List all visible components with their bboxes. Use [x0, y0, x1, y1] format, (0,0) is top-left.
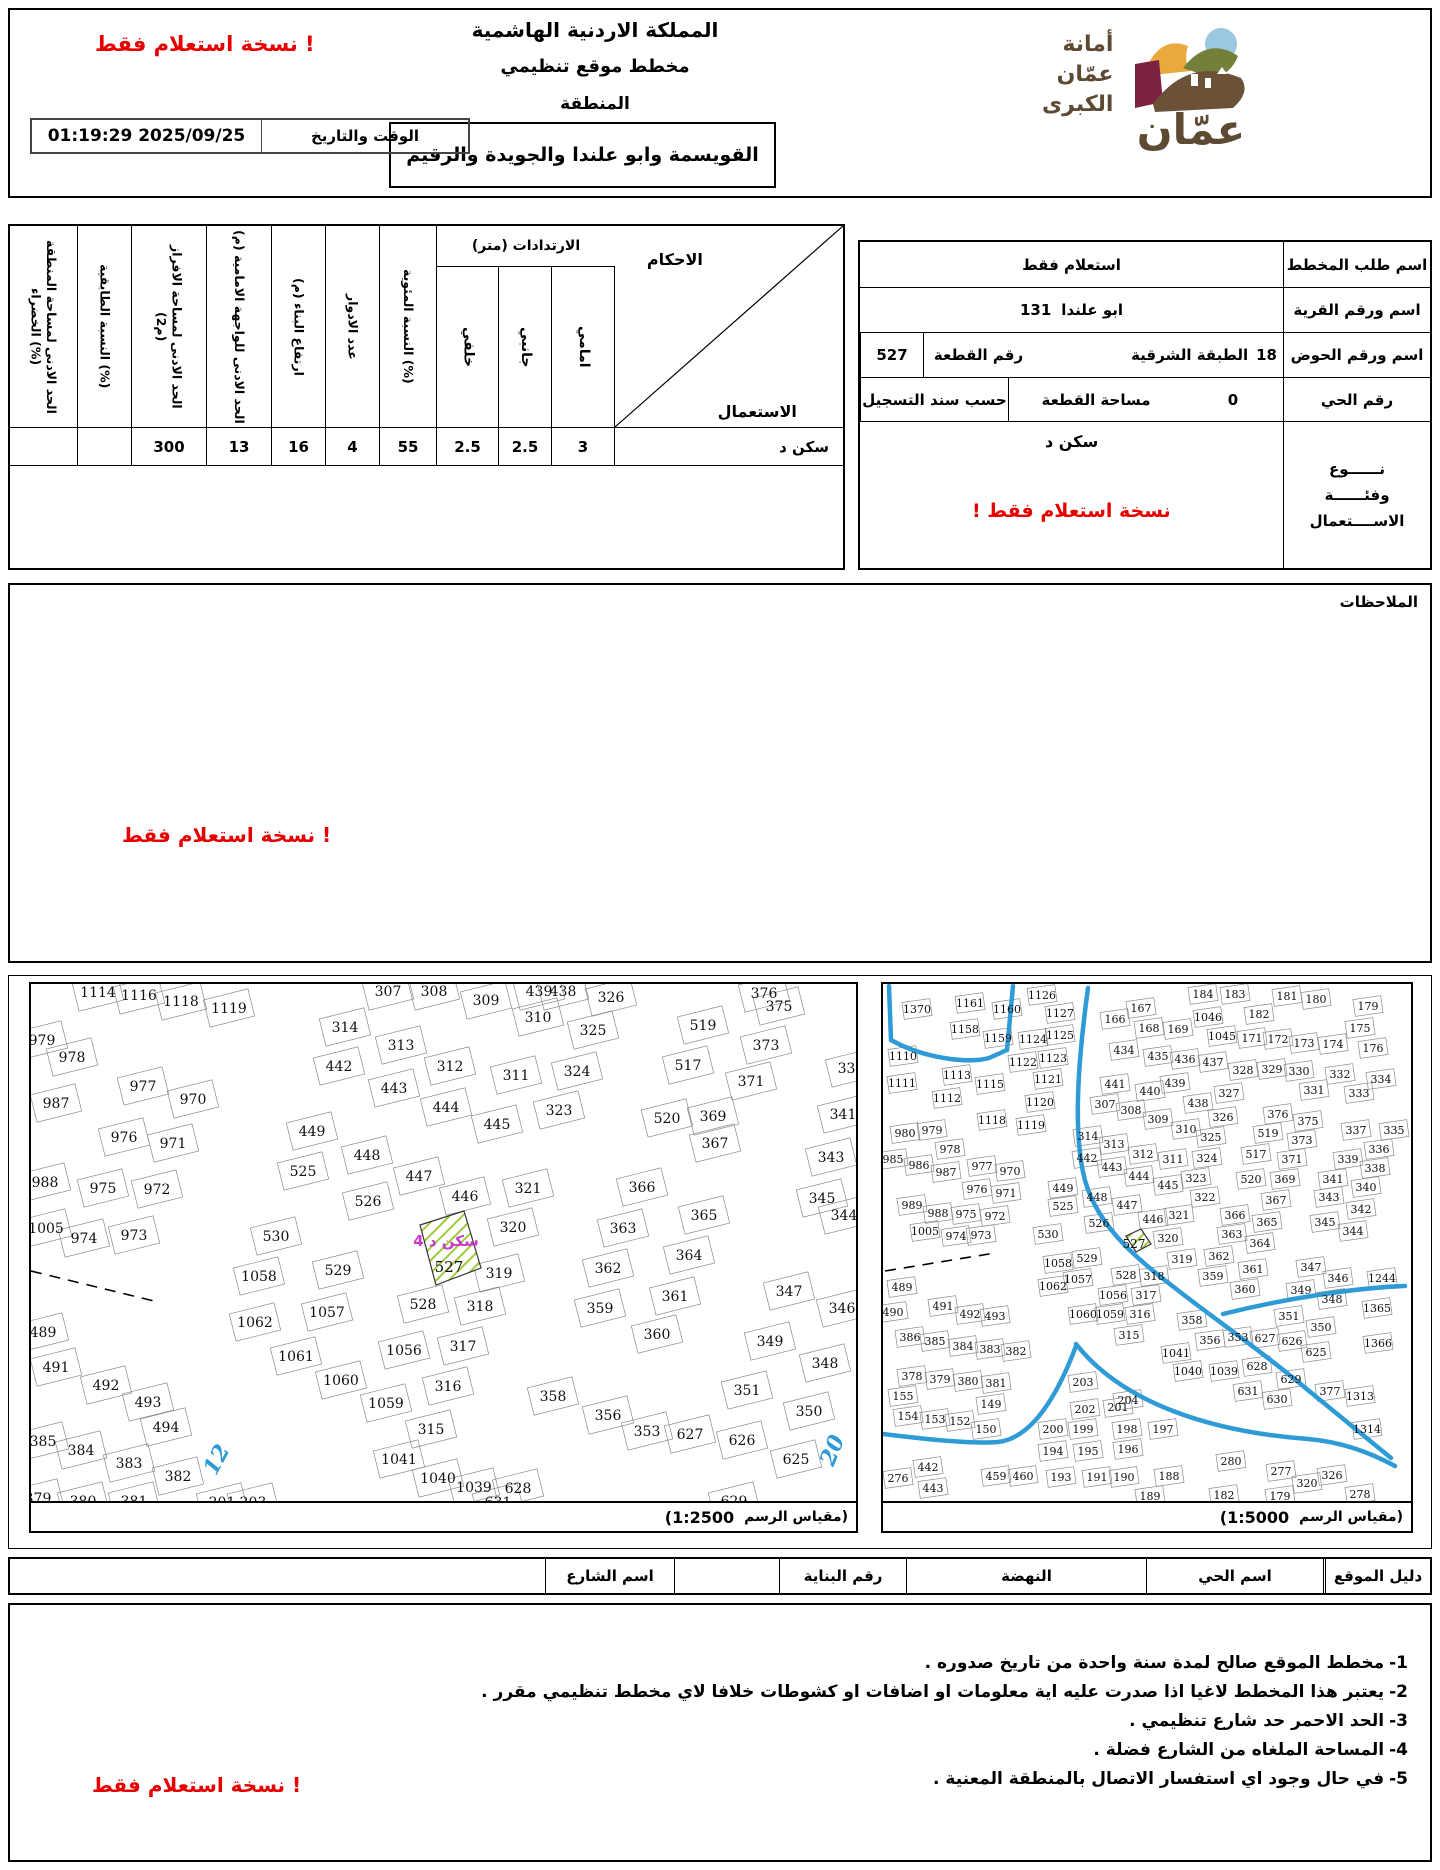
parcel-number: 311	[503, 1068, 530, 1084]
plot-area-value: حسب سند التسجيل	[860, 378, 1008, 421]
parcel-number: 351	[734, 1383, 761, 1399]
parcel-number: 628	[1247, 1360, 1268, 1373]
parcel-number: 308	[1121, 1104, 1142, 1117]
parcel-number: 493	[985, 1310, 1006, 1323]
parcel-number: 520	[1241, 1173, 1262, 1186]
parcel-number: 203	[1073, 1376, 1094, 1389]
parcel-number: 199	[1073, 1423, 1094, 1436]
parcel-number: 987	[43, 1096, 70, 1112]
parcel-number: 347	[1301, 1261, 1322, 1274]
parcel-number: 1159	[984, 1032, 1012, 1045]
parcel-number: 353	[1228, 1331, 1249, 1344]
parcel-number: 154	[898, 1410, 919, 1423]
parcel-number: 366	[1225, 1209, 1246, 1222]
parcel-number: 310	[525, 1010, 552, 1026]
parcel-number: 175	[1350, 1022, 1371, 1035]
parcel-number: 972	[144, 1182, 171, 1198]
parcel-number: 313	[388, 1038, 415, 1054]
parcel-number: 182	[1249, 1008, 1270, 1021]
road-number-label: 20	[814, 1431, 850, 1471]
parcel-number: 1112	[933, 1092, 961, 1105]
parcel-number: 201	[1108, 1401, 1129, 1414]
region-label: المنطقة	[310, 94, 880, 114]
parcel-number: 1113	[943, 1069, 971, 1082]
parcel-number: 977	[130, 1079, 157, 1095]
parcel-number: 626	[729, 1433, 756, 1449]
parcel-number: 445	[484, 1117, 511, 1133]
parcel-number: 1062	[1039, 1280, 1067, 1293]
parcel-number: 976	[967, 1183, 988, 1196]
parcel-number: 1244	[1368, 1272, 1396, 1285]
parcel-number: 188	[1159, 1470, 1180, 1483]
table-row: رقم الحي 0 مساحة القطعة حسب سند التسجيل	[860, 378, 1430, 422]
regulation-column-header: النسبة المئوية (%)	[380, 226, 437, 427]
parcel-number: 341	[1323, 1173, 1344, 1186]
parcel-number: 441	[1105, 1078, 1126, 1091]
parcel-number: 150	[976, 1423, 997, 1436]
parcel-number: 449	[1053, 1182, 1074, 1195]
parcel-number: 630	[1267, 1393, 1288, 1406]
site-plan-document: نسخة استعلام فقط ! المملكة الاردنية الها…	[0, 0, 1440, 1870]
plot-number-value: 527	[860, 333, 923, 377]
parcel-number: 444	[1129, 1170, 1150, 1183]
setback-column-header: جانبي	[499, 267, 552, 427]
setback-column-header: خلفي	[437, 267, 499, 427]
parcel-number: 380	[958, 1375, 979, 1388]
parcel-number: 447	[406, 1169, 433, 1185]
parcel-number: 446	[452, 1189, 479, 1205]
parcel-number: 321	[1169, 1209, 1190, 1222]
map1-scale-value: (1:2500	[665, 1508, 734, 1527]
district-number-label: رقم الحي	[1283, 378, 1430, 421]
parcel-number: 342	[1351, 1203, 1372, 1216]
parcel-number: 359	[1203, 1270, 1224, 1283]
parcel-number: 1120	[1026, 1096, 1054, 1109]
regulations-table: الحد الادنى لمساحة المنطقة الخضراء (%)ال…	[8, 224, 845, 570]
road-number-label: 12	[198, 1440, 235, 1479]
parcel-number: 343	[818, 1150, 845, 1166]
parcel-number: 319	[1172, 1253, 1193, 1266]
parcel-number: 971	[160, 1136, 187, 1152]
parcel-number: 1039	[1210, 1365, 1238, 1378]
parcel-number: 1041	[381, 1452, 417, 1468]
parcel-number: 317	[450, 1339, 477, 1355]
parcel-number: 440	[1140, 1085, 1161, 1098]
parcel-number: 1125	[1046, 1029, 1074, 1042]
parcel-number: 525	[1053, 1200, 1074, 1213]
datetime-value: 01:19:29 2025/09/25	[32, 120, 262, 152]
inquiry-stamp-notes: نسخة استعلام فقط !	[122, 823, 331, 847]
parcel-number: 333	[1349, 1087, 1370, 1100]
regulation-value: 55	[380, 428, 437, 465]
parcel-number: 325	[580, 1023, 607, 1039]
parcel-number: 436	[1175, 1053, 1196, 1066]
regulation-column-header: الحد الادنى للواجهة الامامية (م)	[207, 226, 272, 427]
parcel-number: 375	[766, 999, 793, 1015]
parcel-number: 974	[71, 1231, 98, 1247]
parcel-number: 525	[290, 1164, 317, 1180]
parcel-number: 196	[1118, 1443, 1139, 1456]
parcel-number: 152	[950, 1415, 971, 1428]
parcel-number: 977	[972, 1160, 993, 1173]
parcel-number: 444	[433, 1100, 460, 1116]
parcel-number: 1119	[211, 1001, 247, 1017]
plan-type-title: مخطط موقع تنظيمي	[310, 56, 880, 77]
parcel-number: 974	[946, 1230, 967, 1243]
parcel-number: 307	[1095, 1098, 1116, 1111]
parcel-number: 332	[1330, 1068, 1351, 1081]
parcel-number: 376	[1268, 1108, 1289, 1121]
parcel-number: 311	[1163, 1153, 1184, 1166]
inquiry-stamp-top: نسخة استعلام فقط !	[95, 32, 315, 56]
map2-scale-bar: (1:5000 (مقياس الرسم	[881, 1501, 1413, 1533]
table-row: اسم طلب المخطط استعلام فقط	[860, 242, 1430, 288]
basin-value: 18 الطبقة الشرقية	[1033, 333, 1283, 377]
parcel-number: 1158	[951, 1023, 979, 1036]
parcel-number: 174	[1323, 1038, 1344, 1051]
setbacks-group-header: الارتدادات (متر)	[437, 226, 615, 267]
parcel-number: 1059	[368, 1396, 404, 1412]
parcel-number: 341	[830, 1107, 856, 1123]
parcel-number: 277	[1271, 1465, 1292, 1478]
parcel-number: 980	[895, 1127, 916, 1140]
use-type-label: نــــــوع وفئــــــة الاســــتعمال	[1283, 422, 1430, 568]
parcel-number: 369	[700, 1109, 727, 1125]
request-label: اسم طلب المخطط	[1283, 242, 1430, 287]
parcel-number: 973	[971, 1229, 992, 1242]
parcel-number: 365	[1257, 1216, 1278, 1229]
notes-box: الملاحظات نسخة استعلام فقط !	[8, 583, 1432, 963]
notes-label: الملاحظات	[1340, 593, 1418, 611]
parcel-number: 198	[1117, 1423, 1138, 1436]
parcel-number: 375	[1298, 1115, 1319, 1128]
parcel-number: 356	[1200, 1334, 1221, 1347]
parcel-number: 1005	[911, 1225, 939, 1238]
parcel-number: 490	[883, 1306, 904, 1319]
parcel-number: 323	[1186, 1172, 1207, 1185]
parcel-number: 520	[654, 1111, 681, 1127]
parcel-number: 149	[981, 1398, 1002, 1411]
parcel-number: 382	[1006, 1345, 1027, 1358]
usage-rules-diagonal-cell: الاحكامالاستعمال	[615, 226, 843, 427]
rules-label: الاحكام	[647, 250, 703, 269]
parcel-number: 989	[902, 1199, 923, 1212]
parcel-number: 181	[1277, 990, 1298, 1003]
parcel-number: 364	[676, 1248, 703, 1264]
parcel-number: 172	[1268, 1033, 1289, 1046]
parcel-number: 384	[953, 1340, 974, 1353]
parcel-number: 384	[68, 1443, 95, 1459]
parcel-number: 380	[70, 1494, 97, 1501]
parcel-number: 1114	[80, 985, 116, 1001]
map1-scale-bar: (1:2500 (مقياس الرسم	[29, 1501, 858, 1533]
parcel-number: 629	[1281, 1373, 1302, 1386]
parcel-number: 320	[1297, 1477, 1318, 1490]
parcel-number: 335	[1384, 1124, 1405, 1137]
parcel-number: 381	[121, 1494, 148, 1501]
parcel-number: 351	[1279, 1310, 1300, 1323]
parcel-number: 379	[930, 1373, 951, 1386]
parcel-number: 438	[550, 984, 577, 1000]
parcel-number: 383	[980, 1343, 1001, 1356]
parcel-number: 1161	[956, 997, 984, 1010]
parcel-number: 442	[326, 1059, 353, 1075]
parcel-number: 385	[31, 1434, 56, 1450]
parcel-number: 492	[93, 1378, 120, 1394]
parcel-number: 323	[546, 1103, 573, 1119]
village-value: 131 ابو علندا	[860, 288, 1283, 332]
parcel-number: 348	[812, 1356, 839, 1372]
parcel-number: 358	[540, 1389, 567, 1405]
parcel-number: 1046	[1194, 1011, 1222, 1024]
parcel-number: 349	[1291, 1284, 1312, 1297]
parcel-number: 363	[610, 1221, 637, 1237]
parcel-number: 365	[691, 1208, 718, 1224]
parcel-number: 519	[1258, 1127, 1279, 1140]
parcel-number: 366	[629, 1180, 656, 1196]
parcel-number: 319	[486, 1266, 513, 1282]
parcel-number: 315	[1119, 1329, 1140, 1342]
parcel-number: 1121	[1034, 1073, 1062, 1086]
parcel-number: 310	[1176, 1123, 1197, 1136]
parcel-number: 448	[354, 1148, 381, 1164]
parcel-number: 314	[332, 1020, 359, 1036]
parcel-number: 629	[721, 1494, 748, 1501]
parcel-number: 153	[925, 1413, 946, 1426]
parcel-number: 334	[1371, 1073, 1392, 1086]
parcel-number: 1123	[1039, 1052, 1067, 1065]
parcel-number: 1057	[1064, 1273, 1092, 1286]
parcel-number: 491	[43, 1360, 70, 1376]
parcel-number: 970	[180, 1092, 207, 1108]
parcel-number: 195	[1078, 1445, 1099, 1458]
basin-name: الطبقة الشرقية	[1131, 346, 1248, 364]
parcel-number: 491	[933, 1300, 954, 1313]
parcel-number: 155	[893, 1390, 914, 1403]
parcel-number: 1039	[456, 1480, 492, 1496]
inquiry-stamp-footer: نسخة استعلام فقط !	[92, 1773, 301, 1797]
parcel-number: 973	[121, 1228, 148, 1244]
parcel-number: 1040	[420, 1471, 456, 1487]
inquiry-stamp-table: نسخة استعلام فقط !	[972, 500, 1171, 522]
parcel-number: 1058	[241, 1269, 277, 1285]
map2-scale-value: (1:5000	[1220, 1508, 1289, 1527]
parcel-number: 373	[753, 1038, 780, 1054]
map1-scale-label: (مقياس الرسم	[744, 1509, 848, 1525]
parcel-number: 326	[598, 990, 625, 1006]
parcel-number: 528	[410, 1297, 437, 1313]
parcel-number: 182	[1214, 1489, 1235, 1501]
street-name-value	[10, 1559, 545, 1593]
parcel-number: 443	[381, 1081, 408, 1097]
parcel-number: 173	[1294, 1037, 1315, 1050]
parcel-number: 627	[677, 1427, 704, 1443]
parcel-number: 439	[1165, 1077, 1186, 1090]
parcel-number: 1110	[889, 1050, 917, 1063]
request-value: استعلام فقط	[860, 242, 1283, 287]
basin-number: 18	[1256, 346, 1277, 364]
map-detail-1-2500: سكن د 4527111411161118111930730830943943…	[29, 982, 858, 1503]
parcel-number: 200	[1043, 1423, 1064, 1436]
parcel-number: 324	[1197, 1152, 1218, 1165]
parcel-number: 1058	[1044, 1257, 1072, 1270]
parcel-number: 349	[757, 1334, 784, 1350]
usage-value: سكن د	[615, 428, 843, 465]
parcel-number: 1365	[1363, 1302, 1391, 1315]
parcel-number: 988	[32, 1175, 59, 1191]
parcel-number: 979	[31, 1033, 55, 1049]
amman-municipality-logo: أمانة عمّان الكبرى عمّان	[1042, 16, 1263, 166]
regulation-column-header: الحد الادنى لمساحة الافراز (م2)	[132, 226, 207, 427]
parcel-number: 1056	[1099, 1289, 1127, 1302]
parcel-number: 331	[1304, 1084, 1325, 1097]
parcel-number: 367	[702, 1136, 729, 1152]
parcel-number: 626	[1282, 1335, 1303, 1348]
parcel-number: 442	[918, 1461, 939, 1474]
parcel-number: 447	[1117, 1199, 1138, 1212]
parcel-number: 443	[1102, 1161, 1123, 1174]
parcel-number: 517	[675, 1058, 702, 1074]
parcel-number: 1126	[1028, 989, 1056, 1002]
parcel-number: 309	[473, 993, 500, 1009]
parcel-number: 278	[1350, 1488, 1371, 1501]
parcel-number: 179	[1270, 1490, 1291, 1501]
plot-number-label: رقم القطعة	[923, 333, 1033, 377]
village-label: اسم ورقم القرية	[1283, 288, 1430, 332]
parcel-number: 489	[31, 1325, 56, 1341]
parcel-number: 373	[1292, 1134, 1313, 1147]
parcel-number: 1060	[323, 1373, 359, 1389]
parcel-number: 627	[1255, 1332, 1276, 1345]
parcel-number: 325	[1201, 1131, 1222, 1144]
parcel-number: 169	[1168, 1023, 1189, 1036]
parcel-number: 975	[956, 1208, 977, 1221]
logo-line-2: عمّان	[1057, 60, 1114, 90]
maps-section: سكن د 4527111411161118111930730830943943…	[8, 975, 1432, 1549]
parcel-number: 530	[1038, 1228, 1059, 1241]
parcel-number: 1124	[1019, 1033, 1047, 1046]
parcel-number: 445	[1158, 1179, 1179, 1192]
parcel-number: 978	[59, 1050, 86, 1066]
parcel-number: 1119	[1017, 1119, 1045, 1132]
logo-line-3: الكبرى	[1042, 90, 1113, 120]
parcel-number: 326	[1213, 1111, 1234, 1124]
parcel-number: 364	[1250, 1237, 1271, 1250]
parcel-number: 350	[1311, 1321, 1332, 1334]
parcel-number: 346	[1328, 1272, 1349, 1285]
regulation-value: 4	[326, 428, 380, 465]
parcel-number: 377	[1320, 1385, 1341, 1398]
parcel-number: 1118	[978, 1114, 1006, 1127]
parcel-number: 316	[1130, 1308, 1151, 1321]
parcel-number: 371	[1282, 1153, 1303, 1166]
parcel-number: 369	[1275, 1173, 1296, 1186]
parcel-number: 1314	[1353, 1423, 1381, 1436]
village-name: ابو علندا	[1061, 301, 1123, 319]
parcel-number: 517	[1246, 1148, 1267, 1161]
parcel-number: 371	[738, 1074, 765, 1090]
parcel-number: 307	[375, 984, 402, 1000]
parcel-number: 353	[634, 1424, 661, 1440]
parcel-number: 530	[263, 1229, 290, 1245]
parcel-number: 180	[1306, 993, 1327, 1006]
parcel-number: 985	[883, 1153, 904, 1166]
parcel-number: 446	[1143, 1213, 1164, 1226]
parcel-number: 492	[960, 1308, 981, 1321]
parcel-number: 194	[1043, 1445, 1064, 1458]
parcel-number: 1160	[993, 1003, 1021, 1016]
table-row: اسم ورقم الحوض 18 الطبقة الشرقية رقم الق…	[860, 333, 1430, 378]
parcel-number: 330	[1289, 1065, 1310, 1078]
parcel-number: 313	[1104, 1138, 1125, 1151]
district-number-value: 0	[1183, 378, 1283, 421]
parcel-number: 340	[1356, 1181, 1377, 1194]
highlighted-parcel-number: 527	[435, 1258, 464, 1276]
parcel-number: 326	[1322, 1469, 1343, 1482]
parcel-number: 320	[500, 1220, 527, 1236]
parcel-number: 361	[1243, 1263, 1264, 1276]
datetime-label: الوقت والتاريخ	[262, 120, 468, 152]
parcel-number: 312	[437, 1059, 464, 1075]
parcel-number: 167	[1131, 1002, 1152, 1015]
street-name-label: اسم الشارع	[545, 1559, 674, 1593]
parcel-number: 443	[923, 1482, 944, 1495]
parcel-number: 336	[1369, 1143, 1390, 1156]
parcel-number: 362	[595, 1261, 622, 1277]
parcel-number: 1122	[1009, 1056, 1037, 1069]
datetime-box: 01:19:29 2025/09/25 الوقت والتاريخ	[30, 118, 470, 154]
regulation-column-header: الحد الادنى لمساحة المنطقة الخضراء (%)	[10, 226, 78, 427]
parcel-number: 628	[505, 1481, 532, 1497]
parcel-number: 321	[515, 1181, 542, 1197]
setback-column-header: امامي	[552, 267, 615, 427]
parcel-number: 361	[662, 1289, 689, 1305]
district-name-label: اسم الحي	[1146, 1559, 1323, 1593]
parcel-number: 356	[595, 1408, 622, 1424]
regulation-value: 13	[207, 428, 272, 465]
regulation-value	[78, 428, 132, 465]
parcel-number: 350	[796, 1404, 823, 1420]
parcel-number: 347	[776, 1284, 803, 1300]
parcel-number: 329	[1262, 1063, 1283, 1076]
regulation-column-header: عدد الادوار	[326, 226, 380, 427]
basin-label: اسم ورقم الحوض	[1283, 333, 1430, 377]
parcel-number: 378	[902, 1370, 923, 1383]
parcel-number: 190	[1114, 1471, 1135, 1484]
parcel-number: 345	[1315, 1216, 1336, 1229]
parcel-number: 494	[153, 1420, 180, 1436]
parcel-number: 328	[1233, 1064, 1254, 1077]
building-number-value	[674, 1559, 779, 1593]
regulation-column-header: النسبة الطابقية (%)	[78, 226, 132, 427]
parcel-number: 448	[1087, 1191, 1108, 1204]
parcel-number: 315	[418, 1422, 445, 1438]
parcel-number: 439	[526, 984, 553, 1000]
regulation-value: 3	[552, 428, 615, 465]
parcel-number: 344	[1343, 1225, 1364, 1238]
footer-note-line: -1مخطط الموقع صالح لمدة سنة واحدة من تار…	[32, 1653, 1408, 1673]
parcel-number: 519	[690, 1018, 717, 1034]
footer-note-line: -2يعتبر هذا المخطط لاغيا اذا صدرت عليه ا…	[32, 1682, 1408, 1702]
logo-text: أمانة عمّان الكبرى	[1042, 30, 1113, 120]
parcel-number: 1115	[976, 1078, 1004, 1091]
parcel-number: 1313	[1346, 1390, 1374, 1403]
map-overview-1-5000: 5271370116111601126112718418318118017911…	[881, 982, 1413, 1503]
parcel-number: 625	[783, 1452, 810, 1468]
map2-scale-label: (مقياس الرسم	[1299, 1509, 1403, 1525]
parcel-number: 339	[1338, 1153, 1359, 1166]
parcel-number: 308	[421, 984, 448, 1000]
